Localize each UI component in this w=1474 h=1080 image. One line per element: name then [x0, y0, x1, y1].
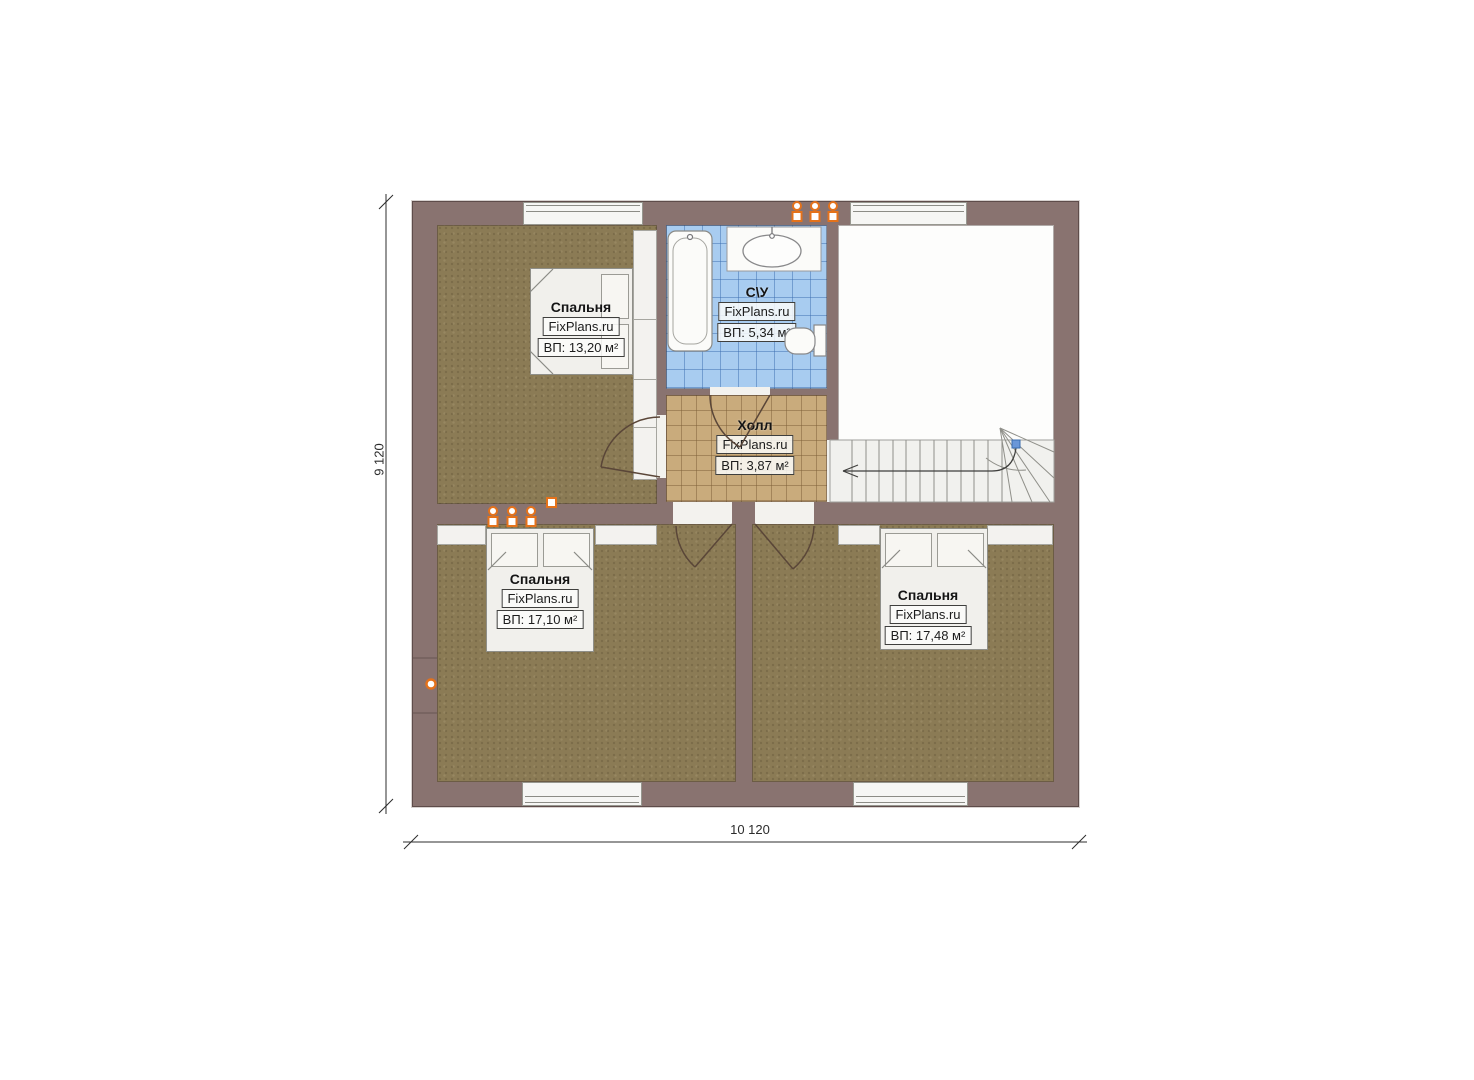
window: [523, 202, 643, 225]
room-area: ВП: 17,10 м²: [497, 610, 584, 629]
watermark: FixPlans.ru: [542, 317, 619, 336]
wardrobe-shelf: [634, 319, 656, 320]
room-name: Спальня: [551, 300, 611, 315]
stair-passage-opening: [827, 440, 838, 502]
wardrobe: [633, 230, 657, 480]
dimension-height-label: 9 120: [372, 439, 387, 481]
room-area: ВП: 3,87 м²: [715, 456, 794, 475]
room-label-bedroom-top-left: Спальня FixPlans.ru ВП: 13,20 м²: [538, 300, 625, 357]
watermark: FixPlans.ru: [889, 605, 966, 624]
room-name: С\У: [746, 285, 769, 300]
room-area: ВП: 17,48 м²: [885, 626, 972, 645]
window-glass: [526, 205, 640, 212]
pillow: [543, 533, 590, 567]
room-name: Спальня: [898, 588, 958, 603]
dimension-width-label: 10 120: [715, 822, 785, 837]
window: [522, 782, 642, 806]
room-area: ВП: 13,20 м²: [538, 338, 625, 357]
door-opening-bedroom-top-left: [657, 415, 666, 478]
cabinet: [437, 525, 486, 545]
room-label-bedroom-bottom-right: Спальня FixPlans.ru ВП: 17,48 м²: [885, 588, 972, 645]
window-glass: [853, 205, 964, 212]
cabinet: [987, 525, 1053, 545]
room-name: Спальня: [510, 572, 570, 587]
room-name: Холл: [737, 418, 772, 433]
wardrobe-shelf: [634, 379, 656, 380]
cabinet: [595, 525, 657, 545]
room-label-hall: Холл FixPlans.ru ВП: 3,87 м²: [715, 418, 794, 475]
door-opening-bedroom-bottom-right: [755, 502, 814, 524]
door-opening-bathroom: [710, 387, 770, 395]
pillow: [491, 533, 538, 567]
room-label-bathroom: С\У FixPlans.ru ВП: 5,34 м²: [717, 285, 796, 342]
window: [853, 782, 968, 806]
window: [850, 202, 967, 225]
window-glass: [856, 796, 965, 803]
floor-plan: Спальня FixPlans.ru ВП: 13,20 м² С\У Fix…: [413, 202, 1078, 806]
pillow: [937, 533, 984, 567]
watermark: FixPlans.ru: [718, 302, 795, 321]
door-opening-bedroom-bottom-left: [673, 502, 732, 524]
room-area: ВП: 5,34 м²: [717, 323, 796, 342]
dimension-line-height: [379, 194, 393, 814]
room-stair-floor: [838, 225, 1054, 502]
watermark: FixPlans.ru: [501, 589, 578, 608]
pillow: [885, 533, 932, 567]
window-glass: [525, 796, 639, 803]
room-label-bedroom-bottom-left: Спальня FixPlans.ru ВП: 17,10 м²: [497, 572, 584, 629]
cabinet: [838, 525, 880, 545]
wardrobe-shelf: [634, 427, 656, 428]
floor-plan-canvas: Спальня FixPlans.ru ВП: 13,20 м² С\У Fix…: [0, 0, 1474, 1080]
watermark: FixPlans.ru: [716, 435, 793, 454]
dimension-line-width: [403, 835, 1087, 849]
